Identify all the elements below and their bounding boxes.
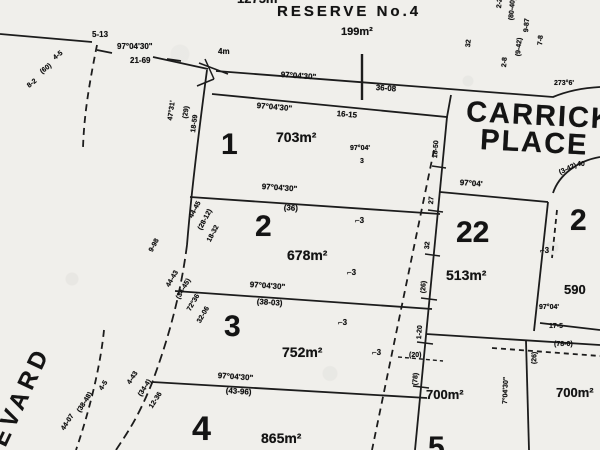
reserve-name: RESERVE No.4 [277, 4, 421, 19]
line-lot22-east [534, 202, 548, 331]
area-1275: 1275m² [237, 0, 282, 5]
dist-east-3: (20) [409, 352, 421, 359]
lot21-area: 590 [564, 283, 586, 296]
lot4-area: 865m² [261, 431, 301, 445]
easement-mark: ⌐3 [540, 247, 549, 255]
line-lot22-bottom [426, 334, 600, 345]
annot-ne-7: 32 [465, 39, 473, 47]
line-dash-a [97, 50, 112, 53]
bearing-south-1: 7°04'30" [502, 377, 510, 404]
lot3-area: 752m² [282, 345, 322, 359]
annot-strip-5: 1-20 [416, 325, 424, 339]
lot5-number: 5 [428, 433, 445, 450]
annot-strip-1: 18-50 [432, 140, 440, 158]
annot-strip-6: (78) [412, 373, 420, 386]
line-700-divider [526, 341, 529, 450]
area-700-right: 700m² [556, 386, 594, 399]
annot-strip-2: 27 [428, 196, 436, 204]
annot-ne-4: 7-8 [537, 35, 545, 46]
dist-lot12: (36) [283, 204, 298, 213]
plan-linework [0, 0, 600, 450]
lot1-number: 1 [221, 130, 238, 160]
street-carrick-line2: PLACE [479, 126, 589, 161]
line-lot22-bottom-dashed [492, 348, 600, 356]
easement-mark: ⌐3 [338, 319, 347, 327]
dim-corner-nw: 5-13 [92, 31, 108, 39]
dist-nw: 21-69 [130, 57, 150, 65]
dim-4m: 4m [218, 48, 230, 56]
easement-mark: ⌐3 [347, 269, 356, 277]
bearing-lot22-top: 97°04' [459, 179, 482, 189]
lot2-number: 2 [255, 212, 272, 242]
line-boulevard-upper [83, 45, 97, 148]
line-lot23 [175, 291, 432, 309]
lot22-number: 22 [456, 218, 489, 248]
line-lot34 [152, 382, 427, 398]
corner-ticks [197, 59, 228, 86]
bearing-ne: 273°6' [554, 80, 574, 87]
lot21-number: 2 [570, 206, 587, 236]
dist-south-1: (26) [531, 352, 538, 365]
annot-ne-1: 2-2 [496, 0, 504, 9]
dist-lot1-inner: 3 [360, 158, 364, 165]
lot4-number: 4 [192, 412, 211, 446]
line-easement [372, 150, 434, 450]
easement-mark: ⌐3 [355, 217, 364, 225]
area-700-left: 700m² [426, 388, 464, 401]
line-lot22-top [440, 192, 548, 202]
line-road-nw [0, 34, 92, 42]
line-east-dashed [552, 210, 557, 258]
survey-plan-canvas: 1275m²RESERVE No.4199m²5-1397°04'30"21-6… [0, 0, 600, 450]
reserve-area: 199m² [341, 27, 373, 38]
easement-mark: ⌐3 [372, 349, 381, 357]
dist-reserve-edge: 36-08 [375, 84, 396, 93]
line-boulevard-lower [76, 330, 104, 450]
dist-lot1-top: 16-15 [336, 110, 357, 120]
dist-lot23: (38-03) [256, 298, 282, 308]
lot1-area: 703m² [276, 130, 316, 144]
annot-strip-4: (26) [420, 281, 428, 294]
annot-strip-3: 32 [424, 241, 432, 249]
bearing-nw: 97°04'30" [117, 43, 153, 51]
line-lot12 [190, 197, 440, 214]
line-lot1-top [212, 94, 451, 117]
lot2-area: 678m² [287, 248, 327, 262]
annot-ne-6: 2-8 [501, 57, 509, 68]
dim-curb-1: 40 [577, 161, 585, 168]
bearing-lot1-inner: 97°04' [350, 145, 370, 152]
lot22-area: 513m² [446, 268, 486, 282]
bearing-east-1: 97°04' [539, 304, 559, 311]
line-reserve-south [216, 71, 600, 97]
lot3-number: 3 [224, 312, 241, 342]
dist-east-2: (78-0) [554, 341, 573, 348]
dist-east-1: 17-5 [549, 323, 563, 330]
dist-lot34: (43-96) [225, 387, 251, 397]
annot-ne-3: 9-87 [523, 18, 531, 33]
